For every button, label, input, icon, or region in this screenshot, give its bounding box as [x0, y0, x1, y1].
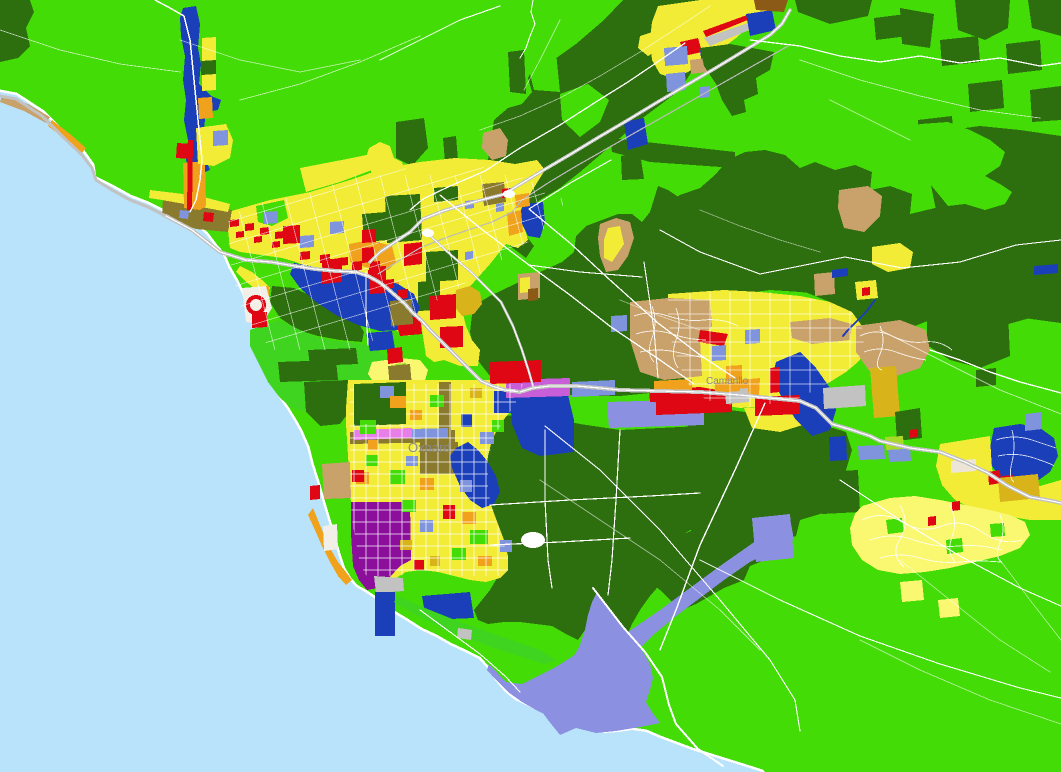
svg-text:Camarillo: Camarillo	[706, 376, 749, 387]
svg-text:Oxnard: Oxnard	[408, 440, 451, 455]
